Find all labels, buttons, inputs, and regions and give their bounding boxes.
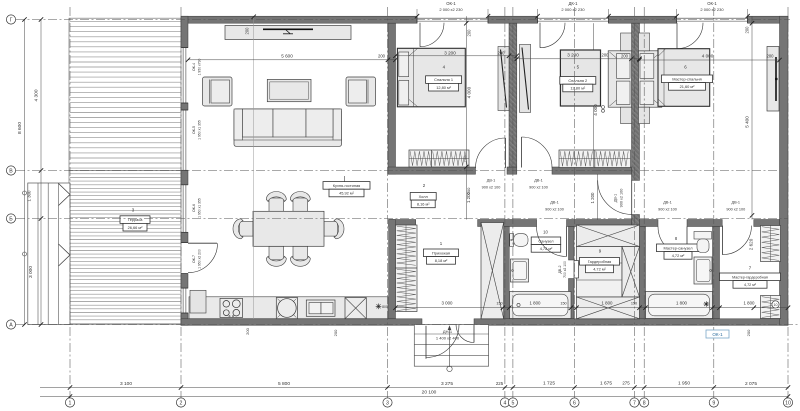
svg-text:8: 8: [643, 400, 646, 406]
svg-text:200: 200: [466, 187, 471, 194]
svg-text:8,18 м²: 8,18 м²: [435, 258, 448, 263]
svg-text:1 950 х1 355: 1 950 х1 355: [198, 198, 202, 218]
svg-text:200: 200: [621, 54, 629, 59]
svg-text:2 000 х2 230: 2 000 х2 230: [561, 7, 585, 12]
svg-text:200: 200: [767, 54, 775, 59]
svg-text:Прихожая: Прихожая: [432, 250, 450, 255]
svg-text:5 400: 5 400: [745, 116, 750, 128]
svg-text:7: 7: [633, 400, 636, 406]
svg-text:ДН-1: ДН-1: [443, 329, 453, 334]
svg-text:3 000: 3 000: [28, 266, 34, 278]
svg-text:200: 200: [244, 27, 249, 35]
svg-text:2 075: 2 075: [745, 381, 757, 387]
svg-text:3 100: 3 100: [120, 381, 132, 387]
svg-text:200: 200: [498, 51, 506, 56]
svg-text:4,72 м²: 4,72 м²: [593, 267, 606, 272]
svg-text:4 000: 4 000: [593, 104, 598, 116]
svg-text:8 600: 8 600: [17, 122, 23, 134]
svg-text:200: 200: [378, 54, 386, 59]
svg-text:150: 150: [496, 302, 502, 306]
svg-text:Мастер-санузел: Мастер-санузел: [663, 245, 692, 250]
svg-text:1 950 х1 355: 1 950 х1 355: [198, 120, 202, 140]
svg-text:1 800: 1 800: [744, 301, 756, 306]
svg-text:Спальня 1: Спальня 1: [434, 77, 453, 82]
svg-text:900 х2 100: 900 х2 100: [529, 186, 548, 190]
svg-text:150: 150: [560, 302, 566, 306]
svg-text:Санузел: Санузел: [538, 238, 553, 243]
svg-text:Гардеробная: Гардеробная: [588, 259, 612, 264]
svg-text:20 100: 20 100: [422, 390, 437, 396]
svg-text:Б: Б: [9, 216, 13, 222]
svg-text:Терраса: Терраса: [128, 217, 144, 222]
svg-text:200: 200: [746, 329, 751, 336]
svg-text:1 675: 1 675: [600, 380, 612, 386]
svg-text:6: 6: [573, 400, 576, 406]
svg-text:ДВ-1: ДВ-1: [732, 201, 740, 205]
svg-text:ОК-5: ОК-5: [192, 126, 196, 134]
svg-text:1 200: 1 200: [590, 192, 595, 204]
svg-text:2: 2: [180, 400, 183, 406]
svg-text:45,92 м²: 45,92 м²: [339, 191, 354, 196]
svg-text:200: 200: [466, 29, 471, 37]
svg-text:9: 9: [712, 400, 715, 406]
svg-text:12,80 м²: 12,80 м²: [436, 85, 451, 90]
svg-text:3 000: 3 000: [442, 301, 454, 306]
svg-text:12,80 м²: 12,80 м²: [570, 86, 585, 91]
svg-text:900 х2 100: 900 х2 100: [658, 208, 677, 212]
svg-text:ОК-6: ОК-6: [192, 204, 196, 212]
svg-text:4,72 м²: 4,72 м²: [672, 253, 685, 258]
svg-text:Спальня 2: Спальня 2: [568, 78, 587, 83]
svg-text:900 х2 100: 900 х2 100: [620, 189, 624, 208]
svg-text:5: 5: [511, 400, 514, 406]
svg-text:800: 800: [382, 305, 388, 309]
svg-text:Мастер-спальня: Мастер-спальня: [672, 76, 702, 81]
svg-text:200: 200: [602, 53, 610, 58]
svg-text:200: 200: [245, 327, 250, 334]
svg-text:3: 3: [386, 400, 389, 406]
svg-text:ДВ-1: ДВ-1: [663, 201, 671, 205]
svg-text:3 200: 3 200: [444, 51, 456, 56]
svg-text:Холл: Холл: [419, 194, 428, 199]
svg-text:21,60 м²: 21,60 м²: [680, 84, 695, 89]
svg-text:1 400 х2 400: 1 400 х2 400: [436, 336, 460, 341]
svg-text:1 800: 1 800: [530, 301, 542, 306]
svg-text:900 х2 100: 900 х2 100: [482, 186, 501, 190]
svg-text:ОК-1: ОК-1: [446, 1, 456, 6]
svg-text:3 200: 3 200: [567, 53, 579, 58]
svg-text:Мастер-гардеробная: Мастер-гардеробная: [732, 275, 768, 279]
svg-text:ДВ-1: ДВ-1: [550, 201, 558, 205]
svg-text:ОК-4: ОК-4: [192, 63, 196, 71]
svg-text:ОК-1: ОК-1: [707, 1, 717, 6]
svg-text:1: 1: [69, 400, 72, 406]
svg-text:10: 10: [774, 303, 778, 307]
svg-text:1 950 х2 200: 1 950 х2 200: [198, 249, 202, 269]
svg-text:2 000 х2 230: 2 000 х2 230: [439, 7, 463, 12]
svg-text:Г: Г: [10, 17, 13, 23]
svg-text:Кухня-гостиная: Кухня-гостиная: [333, 183, 361, 188]
svg-text:5 600: 5 600: [281, 54, 293, 59]
svg-text:200: 200: [333, 329, 338, 336]
svg-text:275: 275: [622, 380, 630, 385]
svg-text:900 х2 100: 900 х2 100: [726, 208, 745, 212]
svg-text:26,66 м²: 26,66 м²: [128, 225, 143, 230]
svg-text:ОК-1: ОК-1: [712, 332, 723, 337]
svg-text:4 300: 4 300: [34, 89, 40, 101]
svg-text:1 800: 1 800: [676, 301, 688, 306]
svg-text:8,16 м²: 8,16 м²: [417, 202, 430, 207]
svg-text:2 620: 2 620: [749, 238, 754, 250]
svg-text:4 000: 4 000: [702, 54, 714, 59]
svg-text:5 800: 5 800: [278, 381, 290, 387]
svg-text:2 000 х2 230: 2 000 х2 230: [700, 7, 724, 12]
svg-text:А: А: [9, 322, 13, 328]
svg-text:1 300: 1 300: [27, 190, 32, 202]
svg-text:200: 200: [745, 26, 750, 34]
svg-text:1 725: 1 725: [543, 380, 555, 386]
svg-text:700 х2 100: 700 х2 100: [563, 261, 567, 278]
svg-text:ОК-7: ОК-7: [192, 255, 196, 263]
svg-text:1 950 х730: 1 950 х730: [198, 58, 202, 75]
svg-text:900 х2 100: 900 х2 100: [545, 208, 564, 212]
svg-text:ДВ-2: ДВ-2: [558, 265, 562, 273]
svg-text:1 800: 1 800: [602, 301, 614, 306]
svg-text:200: 200: [463, 155, 468, 162]
svg-text:1 950: 1 950: [678, 380, 690, 386]
svg-text:ДВ-1: ДВ-1: [487, 179, 495, 183]
svg-text:В: В: [9, 168, 13, 174]
svg-text:4 000: 4 000: [466, 86, 471, 98]
svg-text:150: 150: [631, 302, 637, 306]
svg-text:ДК-1: ДК-1: [569, 1, 579, 6]
svg-text:ДВ-1: ДВ-1: [534, 179, 542, 183]
svg-text:4: 4: [503, 400, 506, 406]
svg-text:225: 225: [496, 381, 504, 386]
svg-text:10: 10: [785, 400, 791, 406]
svg-text:4,72 м²: 4,72 м²: [744, 283, 757, 287]
svg-text:10: 10: [543, 229, 548, 234]
svg-text:3 275: 3 275: [441, 381, 453, 387]
svg-text:ДВ-1: ДВ-1: [614, 194, 618, 202]
